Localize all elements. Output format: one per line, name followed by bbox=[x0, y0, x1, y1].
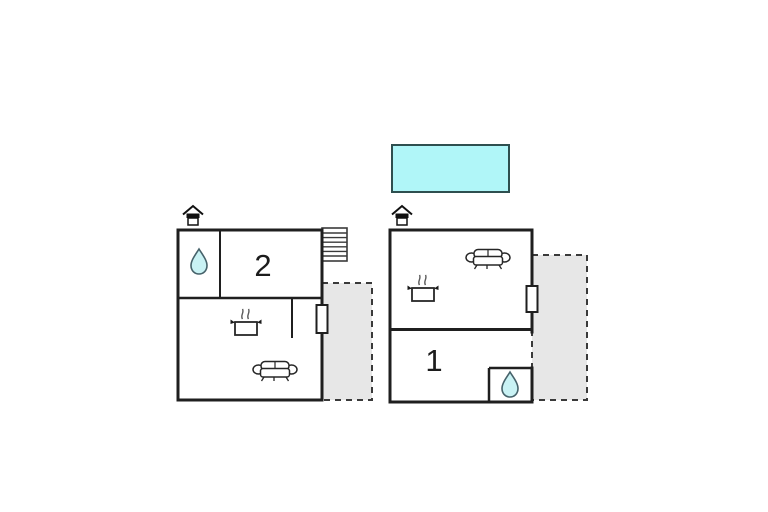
stairs-icon bbox=[322, 228, 347, 261]
unit-1: 1 bbox=[390, 206, 587, 402]
unit-label: 1 bbox=[425, 343, 442, 378]
window bbox=[527, 286, 538, 312]
unit-2: 2 bbox=[178, 206, 372, 400]
terrace bbox=[532, 255, 587, 400]
entrance-icon bbox=[183, 206, 203, 225]
unit-label: 2 bbox=[254, 248, 271, 283]
floorplan-page: 2 bbox=[0, 0, 768, 512]
floorplan-canvas: 2 bbox=[0, 0, 768, 512]
terrace bbox=[322, 283, 372, 400]
entrance-icon bbox=[392, 206, 412, 225]
window bbox=[317, 305, 328, 333]
swimming-pool bbox=[392, 145, 509, 192]
